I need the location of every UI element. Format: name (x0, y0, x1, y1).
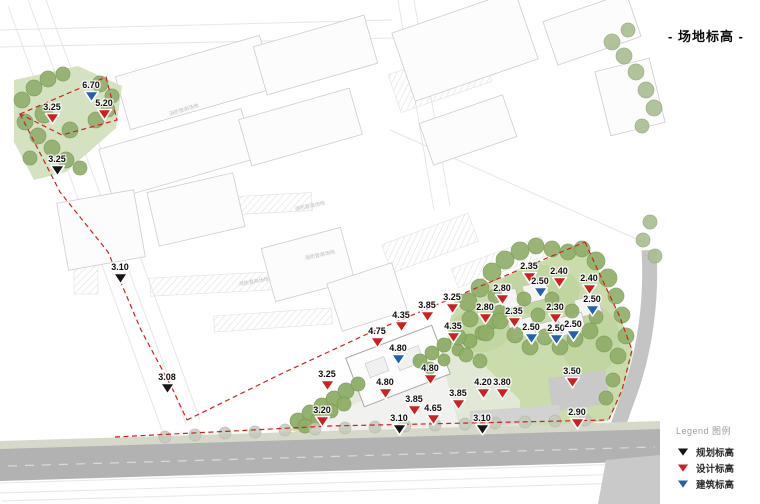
site-plan-drawing (0, 0, 760, 504)
site-plan-sheet: 消防登高场地消防登高场地消防登高场地消防登高场地 3.256.705.203.2… (0, 0, 760, 504)
legend-item-planning: 规划标高 (676, 446, 734, 457)
planning-triangle-icon (676, 447, 690, 457)
legend-item-design: 设计标高 (676, 462, 734, 473)
legend-item-label: 设计标高 (696, 461, 734, 475)
legend-item-label: 建筑标高 (696, 477, 734, 491)
southeast-junction (598, 455, 660, 504)
building-triangle-icon (676, 479, 690, 489)
legend-item-building: 建筑标高 (676, 478, 734, 489)
legend-heading: Legend 图例 (676, 424, 734, 437)
legend: Legend 图例 规划标高 设计标高 建筑标高 (676, 424, 734, 494)
legend-item-label: 规划标高 (696, 445, 734, 459)
page-title: - 场地标高 - (668, 26, 744, 45)
design-triangle-icon (676, 463, 690, 473)
